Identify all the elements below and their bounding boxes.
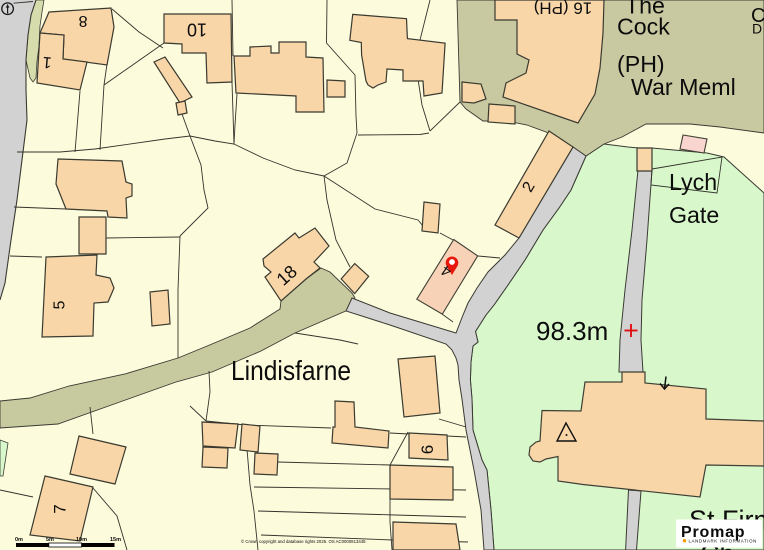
svg-text:15m: 15m [110,537,121,543]
svg-text:D: D [752,21,762,37]
svg-text:5m: 5m [46,537,54,543]
svg-text:7: 7 [51,504,70,513]
svg-text:Lindisfarne: Lindisfarne [231,355,351,386]
svg-text:Gate: Gate [669,202,719,228]
svg-text:0m: 0m [15,537,23,543]
svg-text:98.3m: 98.3m [536,316,608,346]
svg-text:10m: 10m [76,537,87,543]
svg-text:8: 8 [78,12,87,29]
svg-text:© Crown copyright and database: © Crown copyright and database rights 20… [241,539,366,544]
svg-text:1: 1 [42,53,52,71]
svg-text:Cock: Cock [617,14,670,40]
svg-text:10: 10 [187,20,207,40]
svg-text:War Meml: War Meml [631,74,736,100]
svg-text:16 (PH): 16 (PH) [534,0,593,17]
svg-text:5: 5 [51,300,68,309]
svg-text:6: 6 [418,445,437,454]
svg-text:LANDMARK INFORMATION: LANDMARK INFORMATION [689,539,757,544]
svg-text:Lych: Lych [669,169,717,195]
